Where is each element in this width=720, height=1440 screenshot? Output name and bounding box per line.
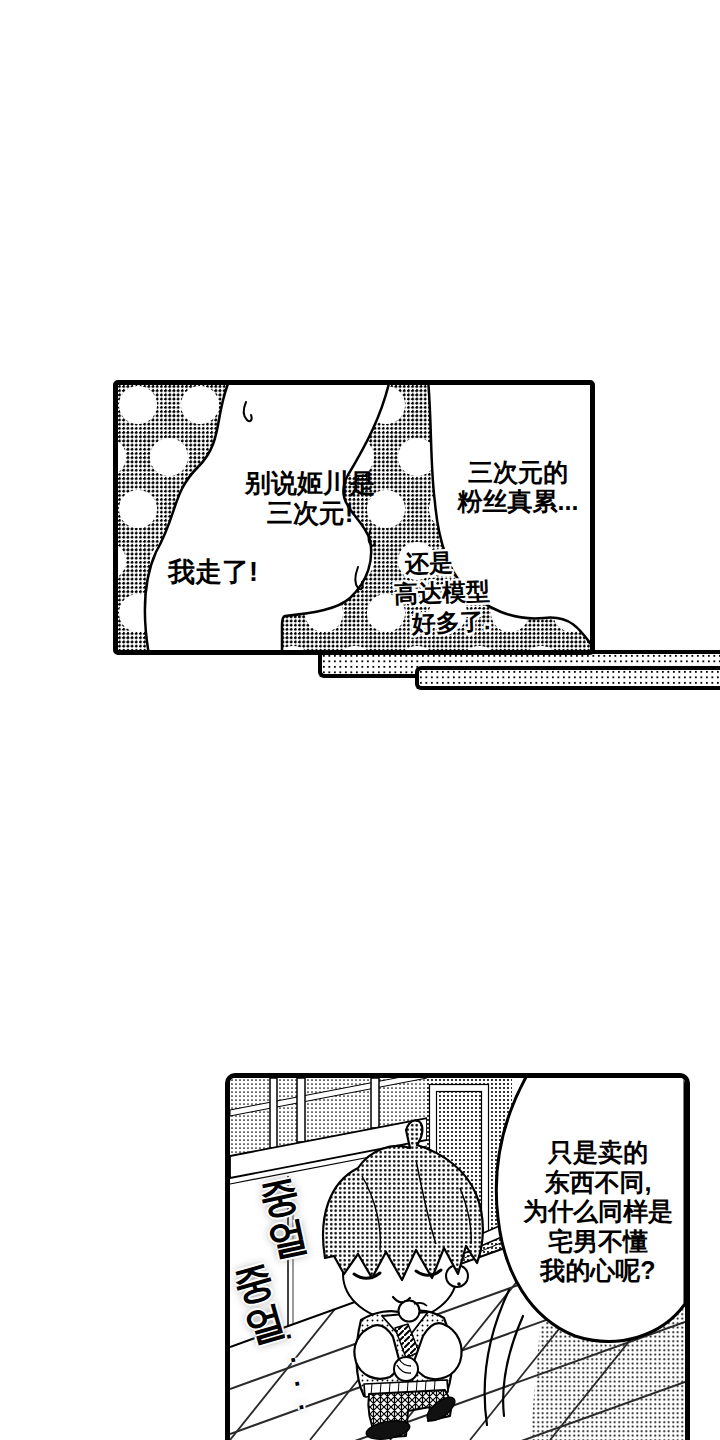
manga-page: 别说姬川是 三次元! 我走了! 三次元的 粉丝真累... 还是 高达模型 好多了…: [0, 0, 720, 1440]
shelf-strip-front: [415, 666, 720, 690]
bottom-panel: 只是卖的 东西不同, 为什么同样是 宅男不懂 我的心呢? 중얼 중얼 ....: [225, 1073, 690, 1440]
speech-line: 东西不同,: [518, 1168, 678, 1198]
speech-line: 宅男不懂: [518, 1227, 678, 1257]
speech-line: 为什么同样是: [518, 1197, 678, 1227]
top-panel: 别说姬川是 三次元! 我走了! 三次元的 粉丝真累... 还是 高达模型 好多了…: [113, 380, 595, 655]
earring-icon: [457, 1282, 461, 1286]
speech-line: 我的心呢?: [518, 1256, 678, 1286]
speech-bubble-text: 只是卖的 东西不同, 为什么同样是 宅男不懂 我的心呢?: [518, 1138, 678, 1286]
speech-right-text: 三次元的 粉丝真累...: [440, 458, 595, 516]
speech-left-text: 别说姬川是 三次元!: [230, 468, 390, 528]
clasped-hands: [394, 1357, 418, 1381]
shout-text: 我走了!: [168, 554, 258, 590]
speech-line: 只是卖的: [518, 1138, 678, 1168]
speech-line: 高达模型: [372, 575, 513, 610]
speech-line: 粉丝真累...: [440, 487, 595, 516]
motion-lines: [485, 1290, 523, 1425]
speech-line: 三次元!: [230, 498, 390, 528]
speech-line: 好多了.: [381, 605, 522, 640]
speech-line: 三次元的: [440, 458, 595, 487]
speech-line: 还是: [358, 546, 499, 581]
aside-text: 还是 高达模型 好多了.: [368, 546, 511, 641]
speech-line: 别说姬川是: [230, 468, 390, 498]
